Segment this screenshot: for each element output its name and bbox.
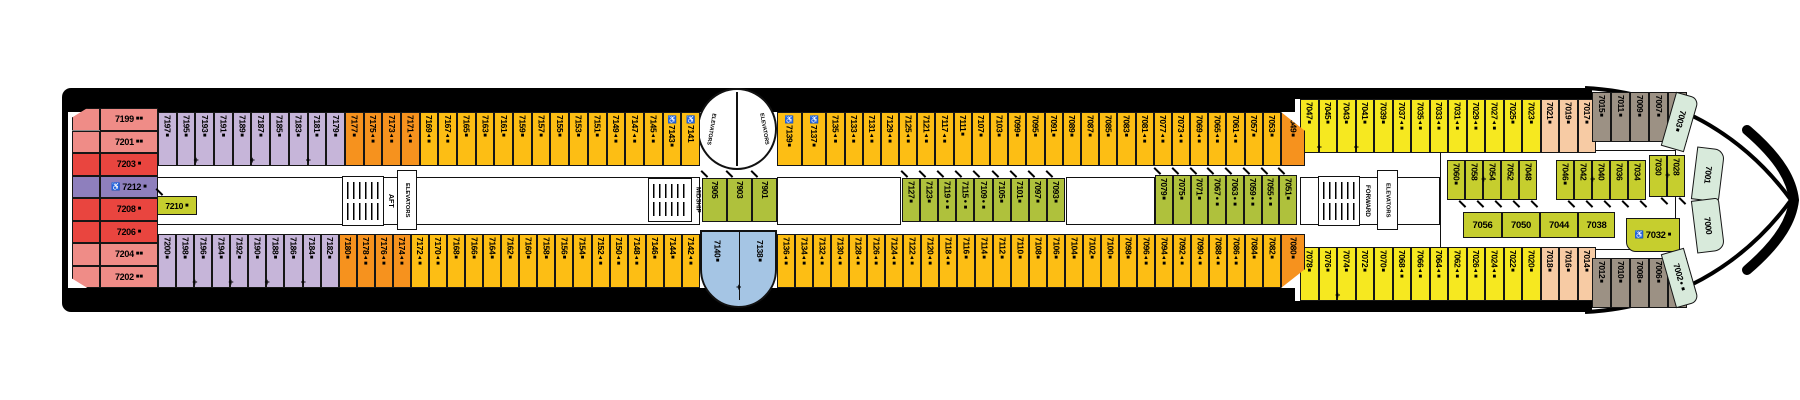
cabin-7180[interactable]: 7180■ (339, 234, 357, 288)
cabin-7085[interactable]: 7085■ (1099, 112, 1117, 166)
cabin-7212[interactable]: ♿7212■ (100, 176, 158, 199)
berth-marks: ●■ (944, 199, 950, 211)
berth-marks: ■ (1053, 199, 1059, 205)
deck-plan: AFT ELEVATORS MIDSHIP ELEVATORS ELEVATOR… (0, 0, 1800, 400)
berth-marks: ■ (1674, 127, 1681, 134)
cabin-number: 7102 (1088, 237, 1097, 254)
cabin-7103[interactable]: 7103■ (990, 112, 1008, 166)
cabin-row-bottom-aft: 7200■7198■+7196■7194■+7192■7190■+7188■71… (158, 234, 700, 288)
cabin-7009[interactable]: 7009■ (1630, 92, 1649, 142)
cabin-7200[interactable]: 7200■ (158, 234, 176, 288)
berth-marks: ■ (1565, 120, 1571, 126)
cabin-number: 7108 (1034, 237, 1043, 254)
cabin-number: 7010 (1616, 261, 1625, 278)
cabin-7903[interactable]: 7903 (727, 178, 752, 222)
cabin-7044[interactable]: 7044 (1540, 212, 1578, 238)
berth-marks: ■ (1179, 196, 1185, 202)
cabin-7124[interactable]: 7124▲■ (885, 234, 903, 288)
cabin-number: 7115 (961, 181, 970, 198)
cabin-7126[interactable]: 7126▲■ (867, 234, 885, 288)
cabin-7015[interactable]: 7015■ (1592, 92, 1611, 142)
wheelchair-accessible-icon: ♿ (810, 115, 818, 124)
wheelchair-accessible-icon: ♿ (668, 115, 676, 124)
cabin-7043[interactable]: 7043■+ (1337, 99, 1356, 153)
berth-marks: ▲■ (381, 255, 387, 267)
cabin-7108[interactable]: 7108■ (1029, 234, 1047, 288)
berth-marks: ■ (575, 133, 581, 139)
cabin-7149[interactable]: 7149▲■ (607, 112, 626, 166)
cabin-number: 7035 (1416, 102, 1425, 119)
cabin-7203[interactable]: 7203■ (100, 153, 158, 176)
cabin-7060[interactable]: 7060■ (1447, 160, 1465, 200)
cabin-7035[interactable]: 7035▲■ (1411, 99, 1430, 153)
cabin-number: 7071 (1195, 178, 1204, 195)
cabin-7185[interactable]: 7185■ (270, 112, 289, 166)
cabin-number: 7088 (1214, 237, 1223, 254)
cabin-number: 7122 (908, 237, 917, 254)
cabin-7042[interactable]: 7042+ (1574, 160, 1592, 200)
berth-marks: ■ (202, 133, 208, 139)
berth-marks: ▲■ (819, 255, 825, 267)
cabin-7148[interactable]: 7148▲■ (628, 234, 646, 288)
cabin-7171[interactable]: 7171▲■ (401, 112, 420, 166)
cabin-7023[interactable]: 7023■ (1522, 99, 1541, 153)
cabin-number: 7173 (387, 115, 396, 132)
cabin-7204[interactable]: 7204■■ (100, 243, 158, 266)
cabin-7034[interactable]: 7034 (1628, 160, 1646, 200)
cabin-7110[interactable]: 7110■ (1011, 234, 1029, 288)
cabin-7137[interactable]: ♿7137■ (802, 112, 827, 166)
cabin-stack-aft: 7199■■7201■■7203■♿7212■7208■7206■7204■■7… (100, 108, 158, 288)
cabin-7161[interactable]: 7161■ (494, 112, 513, 166)
cabin-number: 7188 (271, 237, 280, 254)
cabin-7084[interactable]: 7084■ (1245, 234, 1263, 288)
cabin-7147[interactable]: 7147▲■ (625, 112, 644, 166)
berth-marks: ■ (351, 133, 357, 139)
cabin-7090[interactable]: 7090▲■ (1191, 234, 1209, 288)
cabin-7169[interactable]: 7169▲■ (420, 112, 439, 166)
cabin-7158[interactable]: 7158■ (537, 234, 555, 288)
cabin-number: 7167 (443, 115, 452, 132)
berth-marks: ■ (996, 133, 1002, 139)
cabin-7050[interactable]: 7050 (1502, 212, 1540, 238)
berth-marks: ■ (236, 255, 242, 261)
wheelchair-accessible-icon: ♿ (1635, 230, 1644, 239)
cabin-7055[interactable]: 7055●■ (1262, 175, 1280, 225)
midship-stairs (648, 178, 692, 222)
cabin-number: 7062 (1453, 250, 1462, 267)
cabin-number: 7193 (200, 115, 209, 132)
cabin-7145[interactable]: 7145▲■ (644, 112, 663, 166)
cabin-7069[interactable]: 7069▲■ (1190, 112, 1208, 166)
cabin-row-interior-midship: 7127■7123■7119●■7115●■7109●■7105■7101■70… (902, 178, 1065, 222)
cabin-7162[interactable]: 7162■ (501, 234, 519, 288)
hull-segment (72, 176, 100, 199)
cabin-7123[interactable]: 7123■ (920, 178, 938, 222)
berth-marks: ▲■ (598, 255, 604, 267)
cabin-number: 7051 (1284, 178, 1293, 195)
berth-marks: ■ (276, 133, 282, 139)
cabin-7102[interactable]: 7102■ (1083, 234, 1101, 288)
connecting-door-plus: + (228, 278, 233, 287)
cabin-number: 7038 (1587, 220, 1607, 231)
cabin-7052[interactable]: 7052 (1501, 160, 1519, 200)
cabin-number: 7208 (117, 204, 136, 214)
cabin-7195[interactable]: 7195■+ (177, 112, 196, 166)
cabin-7178[interactable]: 7178▲■ (357, 234, 375, 288)
cabin-7057[interactable]: 7057■ (1245, 112, 1263, 166)
berth-marks: ■ (1035, 255, 1041, 261)
cabin-7016[interactable]: 7016■ (1559, 247, 1578, 301)
cabin-7114[interactable]: 7114■ (975, 234, 993, 288)
cabin-number: 7183 (294, 115, 303, 132)
cabin-7048[interactable]: 7048 (1519, 160, 1537, 200)
berth-marks: ■ (1343, 120, 1349, 126)
cabin-7133[interactable]: 7133▲■ (845, 112, 863, 166)
cabin-7076[interactable]: 7076■+ (1319, 247, 1338, 301)
cabin-7088[interactable]: 7088▲■ (1209, 234, 1227, 288)
cabin-7086[interactable]: 7086▲■ (1227, 234, 1245, 288)
cabin-7112[interactable]: 7112■ (993, 234, 1011, 288)
cabin-7031[interactable]: 7031▲■ (1448, 99, 1467, 153)
cabin-7067[interactable]: 7067●■ (1208, 175, 1226, 225)
cabin-number: 7170 (434, 237, 443, 254)
cabin-7179[interactable]: 7179■ (326, 112, 345, 166)
cabin-7073[interactable]: 7073▲■ (1172, 112, 1190, 166)
cabin-number: 7007 (1654, 95, 1663, 112)
cabin-number: 7111 (958, 115, 967, 131)
cabin-7155[interactable]: 7155■ (550, 112, 569, 166)
cabin-7139[interactable]: ♿7139■ (777, 112, 802, 166)
berth-marks: ▲■ (1179, 255, 1185, 267)
cabin-number: 7030 (1654, 158, 1663, 175)
cabin-7166[interactable]: 7166■ (465, 234, 483, 288)
cabin-7131[interactable]: 7131▲■ (863, 112, 881, 166)
cabin-7135[interactable]: 7135▲■ (826, 112, 844, 166)
cabin-7105[interactable]: 7105■ (993, 178, 1011, 222)
connecting-door-plus: + (306, 156, 311, 165)
cabin-7120[interactable]: 7120▲■ (921, 234, 939, 288)
cabin-number: 7048 (1524, 163, 1533, 180)
cabin-7202[interactable]: 7202■■ (100, 266, 158, 289)
cabin-7125[interactable]: 7125▲■ (899, 112, 917, 166)
cabin-7010[interactable]: 7010■ (1611, 258, 1630, 308)
cabin-7197[interactable]: 7197■ (158, 112, 177, 166)
berth-marks: ■ (182, 255, 188, 261)
cabin-number: 7182 (325, 237, 334, 254)
cabin-7107[interactable]: 7107■ (972, 112, 990, 166)
cabin-7065[interactable]: 7065▲■ (1208, 112, 1226, 166)
cabin-7083[interactable]: 7083■ (1117, 112, 1135, 166)
cabin-7191[interactable]: 7191■ (214, 112, 233, 166)
connecting-door-plus: + (1317, 143, 1322, 152)
cabin-number: 7199 (115, 114, 134, 124)
cabin-7092[interactable]: 7092▲■ (1173, 234, 1191, 288)
cabin-7165[interactable]: 7165■ (457, 112, 476, 166)
cabin-number: 7034 (1633, 163, 1642, 180)
cabin-number: 7033 (1435, 102, 1444, 119)
cabin-7012[interactable]: 7012■ (1592, 258, 1611, 308)
cabin-7138[interactable]: 7138■ (756, 238, 765, 264)
cabin-7194[interactable]: 7194■+ (212, 234, 230, 288)
cabin-7038[interactable]: 7038 (1578, 212, 1615, 238)
cabin-number: 7136 (782, 237, 791, 254)
cabin-7189[interactable]: 7189■+ (233, 112, 252, 166)
cabin-7077[interactable]: 7077▲■ (1154, 112, 1172, 166)
cabin-7134[interactable]: 7134▲■ (795, 234, 813, 288)
cabin-7901[interactable]: 7901 (752, 178, 777, 222)
cabin-7051[interactable]: 7051■ (1279, 175, 1297, 225)
cabin-7072[interactable]: 7072■ (1356, 247, 1375, 301)
cabin-7170[interactable]: 7170▲■ (429, 234, 447, 288)
cabin-number: 7077 (1159, 115, 1168, 132)
cabin-7037[interactable]: 7037▲■ (1393, 99, 1412, 153)
cabin-7019[interactable]: 7019■ (1559, 99, 1578, 153)
berth-marks: ■ (1251, 133, 1257, 139)
cabin-7199[interactable]: 7199■■ (100, 108, 158, 131)
cabin-7143[interactable]: ♿7143■ (663, 112, 682, 166)
cabin-7136[interactable]: 7136▲■ (777, 234, 795, 288)
cabin-7056[interactable]: 7056 (1463, 212, 1502, 238)
cabin-7095[interactable]: 7095■ (1026, 112, 1044, 166)
hull-segment (72, 243, 100, 266)
cabin-number: 7186 (289, 237, 298, 254)
cabin-7100[interactable]: 7100■ (1101, 234, 1119, 288)
cabin-7081[interactable]: 7081▲■ (1136, 112, 1154, 166)
berth-marks: ■ (295, 133, 301, 139)
cabin-number: 7050 (1511, 220, 1531, 231)
cabin-7071[interactable]: 7071■ (1191, 175, 1209, 225)
cabin-7097[interactable]: 7097■ (1029, 178, 1047, 222)
berth-marks: ■ (1547, 268, 1553, 274)
midship-area-2 (1066, 177, 1155, 225)
cabin-7151[interactable]: 7151■ (588, 112, 607, 166)
cabin-7160[interactable]: 7160■ (519, 234, 537, 288)
cabin-7104[interactable]: 7104■ (1065, 234, 1083, 288)
cabin-7141[interactable]: ♿7141 (681, 112, 700, 166)
cabin-7119[interactable]: 7119●■ (938, 178, 956, 222)
cabin-7167[interactable]: 7167▲■ (438, 112, 457, 166)
cabin-7030[interactable]: 7030+ (1649, 155, 1667, 197)
cabin-number: 7045 (1324, 102, 1333, 119)
cabin-7121[interactable]: 7121▲■ (917, 112, 935, 166)
berth-marks: ▲■ (923, 133, 929, 145)
berth-marks: ■ (333, 133, 339, 139)
cabin-7128[interactable]: 7128▲■ (849, 234, 867, 288)
berth-marks: ■ (978, 133, 984, 139)
cabin-7070[interactable]: 7070■ (1374, 247, 1393, 301)
cabin-7094[interactable]: 7094▲■ (1155, 234, 1173, 288)
cabin-7024[interactable]: 7024▲■ (1485, 247, 1504, 301)
cabin-7198[interactable]: 7198■+ (176, 234, 194, 288)
cabin-number: 7024 (1490, 250, 1499, 267)
cabin-7154[interactable]: 7154■ (573, 234, 591, 288)
cabin-7164[interactable]: 7164■ (483, 234, 501, 288)
berth-marks: ■ (345, 255, 351, 261)
cabin-7176[interactable]: 7176▲■ (375, 234, 393, 288)
cabin-7168[interactable]: 7168■ (447, 234, 465, 288)
berth-marks: ▲■ (650, 133, 656, 145)
cabin-row-top-mid: ♿7139■♿7137■7135▲■7133▲■7131▲■7129▲■7125… (777, 112, 1281, 166)
berth-marks: ■ (463, 133, 469, 139)
cabin-7186[interactable]: 7186■+ (284, 234, 302, 288)
cabin-7018[interactable]: 7018■ (1541, 247, 1560, 301)
cabin-7039[interactable]: 7039■ (1374, 99, 1393, 153)
cabin-7115[interactable]: 7115●■ (956, 178, 974, 222)
cabin-7111[interactable]: 7111■ (954, 112, 972, 166)
cabin-7033[interactable]: 7033▲■ (1430, 99, 1449, 153)
cabin-7122[interactable]: 7122▲■ (903, 234, 921, 288)
cabin-number: 7132 (818, 237, 827, 254)
cabin-7206[interactable]: 7206■ (100, 221, 158, 244)
cabin-7117[interactable]: 7117▲■ (935, 112, 953, 166)
cabin-7159[interactable]: 7159■ (513, 112, 532, 166)
berth-marks: ■ (1453, 181, 1459, 187)
berth-marks: ■ (507, 255, 513, 261)
cabin-7208[interactable]: 7208■ (100, 198, 158, 221)
cabin-7157[interactable]: 7157■ (532, 112, 551, 166)
cabin-number: 7163 (481, 115, 490, 132)
connecting-door-plus: + (250, 156, 255, 165)
cabin-7116[interactable]: 7116■ (957, 234, 975, 288)
cabin-7172[interactable]: 7172▲■ (411, 234, 429, 288)
berth-marks: ■ (1107, 255, 1113, 261)
cabin-7132[interactable]: 7132▲■ (813, 234, 831, 288)
cabin-7177[interactable]: 7177■ (345, 112, 364, 166)
berth-marks: ■ (525, 255, 531, 261)
cabin-7129[interactable]: 7129▲■ (881, 112, 899, 166)
cabin-7130[interactable]: 7130▲■ (831, 234, 849, 288)
cabin-7175[interactable]: 7175▲■ (364, 112, 383, 166)
cabin-7068[interactable]: 7068▲■ (1393, 247, 1412, 301)
cabin-7127[interactable]: 7127■ (902, 178, 920, 222)
cabin-7059[interactable]: 7059●■ (1244, 175, 1262, 225)
cabin-7087[interactable]: 7087■ (1081, 112, 1099, 166)
berth-marks: ■ (1290, 255, 1296, 261)
cabin-7008[interactable]: 7008■ (1630, 258, 1649, 308)
berth-marks: ■ (1599, 279, 1605, 285)
berth-marks: ■ (1071, 255, 1077, 261)
cabin-7153[interactable]: 7153■ (569, 112, 588, 166)
cabin-7174[interactable]: 7174▲■ (393, 234, 411, 288)
cabin-7150[interactable]: 7150▲■ (610, 234, 628, 288)
berth-marks: ■ (258, 133, 264, 139)
connecting-door-plus: + (1481, 175, 1486, 184)
cabin-number: 7027 (1490, 102, 1499, 119)
cabin-7046[interactable]: 7046■ (1556, 160, 1574, 200)
berth-marks: ▲■ (801, 255, 807, 267)
cabin-7099[interactable]: 7099■ (1008, 112, 1026, 166)
cabin-7118[interactable]: 7118▲■ (939, 234, 957, 288)
berth-marks: ■ (1069, 133, 1075, 139)
cabin-7173[interactable]: 7173▲■ (382, 112, 401, 166)
cabin-7079[interactable]: 7079■ (1155, 175, 1173, 225)
cabin-number: 7176 (380, 237, 389, 254)
cabin-number: 7029 (1472, 102, 1481, 119)
cabin-7011[interactable]: 7011■ (1611, 92, 1630, 142)
connecting-door-plus: + (192, 278, 197, 287)
cabin-7183[interactable]: 7183■+ (289, 112, 308, 166)
cabin-7142[interactable]: 7142▲■ (682, 234, 700, 288)
cabin-7022[interactable]: 7022■ (1504, 247, 1523, 301)
berth-marks: ●■ (1232, 196, 1238, 208)
berth-marks: ■ (183, 133, 189, 139)
cabin-number: 7109 (979, 181, 988, 198)
cabin-number: 7200 (163, 237, 172, 254)
cabin-7140[interactable]: 7140■ (713, 238, 722, 264)
cabin-7082[interactable]: 7082■ (1263, 234, 1281, 288)
connecting-door-plus: + (194, 156, 199, 165)
cabin-7053[interactable]: 7053■ (1263, 112, 1281, 166)
cabin-7027[interactable]: 7027▲■ (1485, 99, 1504, 153)
cabin-7091[interactable]: 7091■ (1045, 112, 1063, 166)
cabin-7062[interactable]: 7062▲■ (1448, 247, 1467, 301)
cabin-number: 7091 (1049, 115, 1058, 132)
cabin-row-bottom-forward: 7078■7076■+7074■7072■7070■7068▲■7066▲■70… (1300, 247, 1596, 301)
cabin-7026[interactable]: 7026▲■ (1467, 247, 1486, 301)
cabin-7109[interactable]: 7109●■ (974, 178, 992, 222)
cabin-7025[interactable]: 7025■ (1504, 99, 1523, 153)
berth-marks: ■ (309, 255, 315, 261)
cabin-7098[interactable]: 7098■ (1119, 234, 1137, 288)
cabin-number: 7040 (1597, 163, 1606, 180)
cabin-7032[interactable]: ♿7032■ (1626, 218, 1680, 252)
cabin-7066[interactable]: 7066▲■ (1411, 247, 1430, 301)
cabin-7163[interactable]: 7163■ (476, 112, 495, 166)
cabin-7106[interactable]: 7106■ (1047, 234, 1065, 288)
cabin-number: 7120 (926, 237, 935, 254)
berth-marks: ■ (1161, 196, 1167, 202)
cabin-number: 7157 (537, 115, 546, 132)
berth-marks: ■ (594, 133, 600, 139)
cabin-7020[interactable]: 7020■ (1522, 247, 1541, 301)
cabin-7089[interactable]: 7089■ (1063, 112, 1081, 166)
cabin-7101[interactable]: 7101■ (1011, 178, 1029, 222)
connecting-door-plus: + (1665, 171, 1670, 180)
cabin-7064[interactable]: 7064▲■ (1430, 247, 1449, 301)
cabin-7182[interactable]: 7182■ (321, 234, 339, 288)
cabin-7210[interactable]: 7210■ (157, 196, 197, 215)
cabin-7075[interactable]: 7075■ (1173, 175, 1191, 225)
cabin-number: 7124 (890, 237, 899, 254)
cabin-number: 7103 (995, 115, 1004, 132)
cabin-7096[interactable]: 7096▲■ (1137, 234, 1155, 288)
cabin-7036[interactable]: 7036 (1610, 160, 1628, 200)
cabin-7063[interactable]: 7063●■ (1226, 175, 1244, 225)
cabin-7146[interactable]: 7146■ (646, 234, 664, 288)
cabin-number: 7002 (1672, 262, 1685, 281)
berth-marks: ■ (1362, 268, 1368, 274)
cabin-number: 7110 (1016, 237, 1025, 254)
cabin-number: 7181 (313, 115, 322, 132)
cabin-number: 7105 (997, 181, 1006, 198)
cabin-7144[interactable]: 7144■ (664, 234, 682, 288)
cabin-7093[interactable]: 7093■ (1047, 178, 1065, 222)
berth-marks: ■ (561, 255, 567, 261)
berth-marks: ■ (557, 133, 563, 139)
cabin-number: 7901 (760, 181, 769, 198)
cabin-7201[interactable]: 7201■■ (100, 131, 158, 154)
cabin-7021[interactable]: 7021■ (1541, 99, 1560, 153)
cabin-7190[interactable]: 7190■+ (248, 234, 266, 288)
berth-marks: ▲■ (1142, 133, 1148, 145)
cabin-7029[interactable]: 7029▲■ (1467, 99, 1486, 153)
cabin-7156[interactable]: 7156■ (555, 234, 573, 288)
cabin-7058[interactable]: 7058+ (1465, 160, 1483, 200)
cabin-7152[interactable]: 7152▲■ (592, 234, 610, 288)
cabin-7905[interactable]: 7905 (702, 178, 727, 222)
cabin-7061[interactable]: 7061▲■ (1226, 112, 1244, 166)
